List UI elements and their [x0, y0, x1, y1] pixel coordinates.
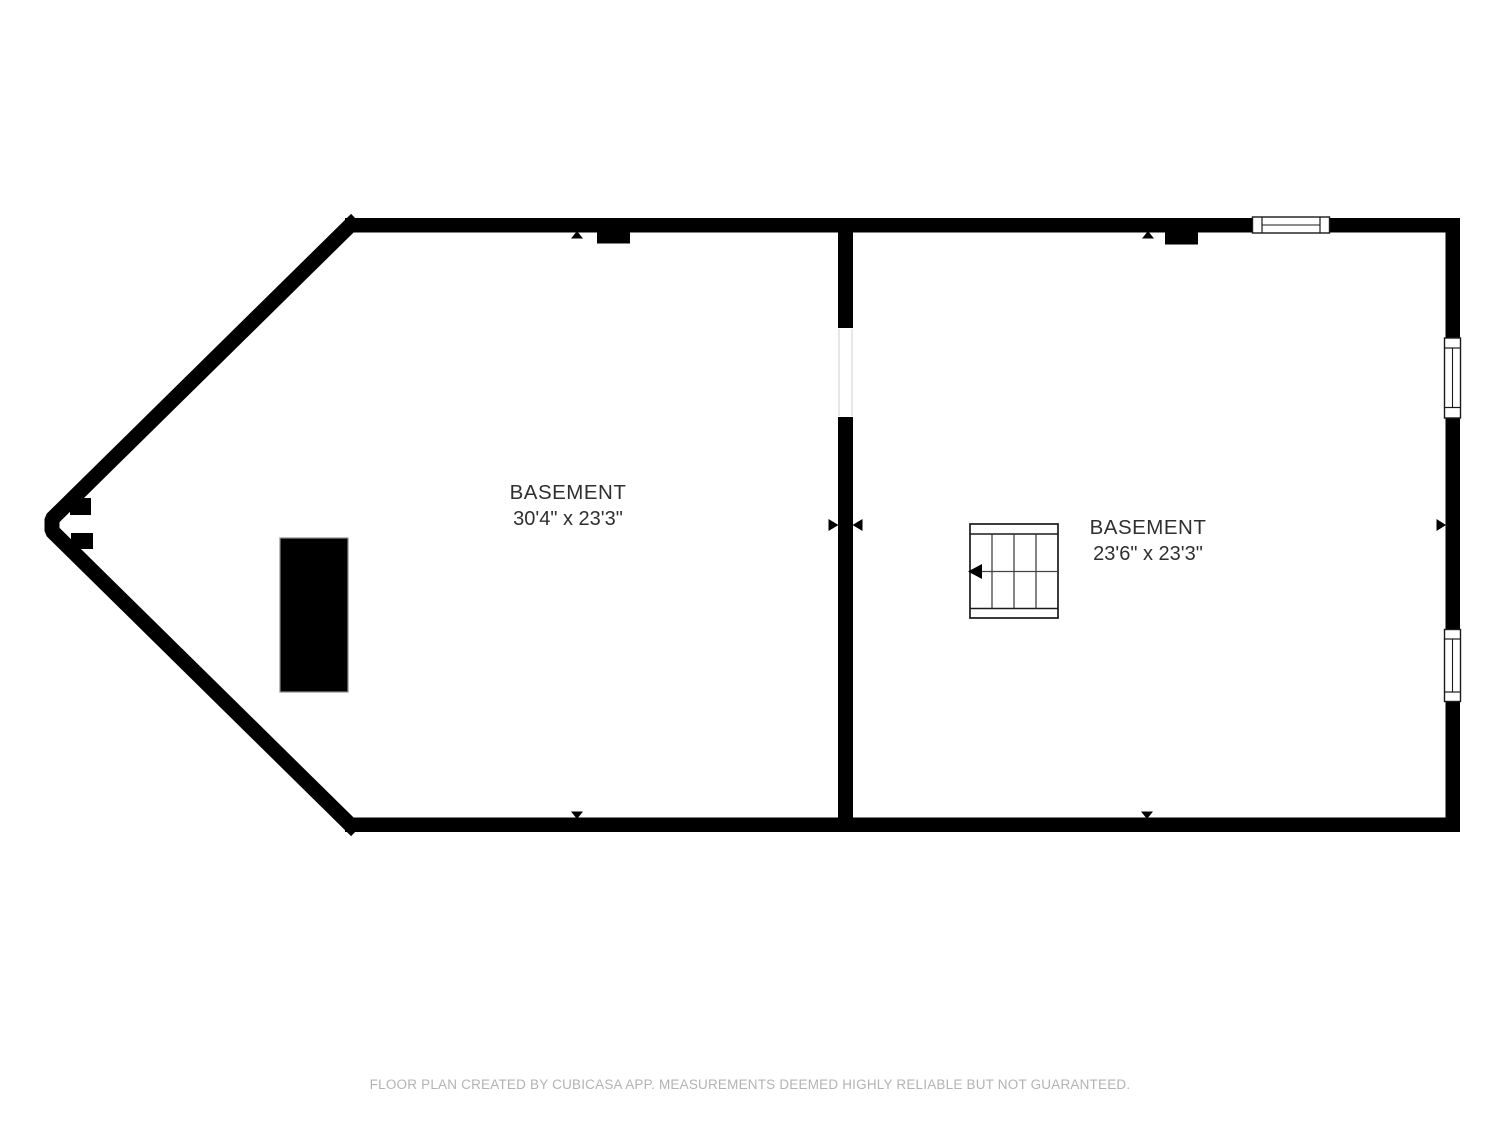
right-wall: [1446, 218, 1461, 832]
door-opening-divider-wall: [839, 329, 852, 416]
divider-wall-lower-segment: [838, 417, 853, 818]
fireplace-icon: [280, 538, 348, 692]
divider-wall-upper-segment: [838, 232, 853, 328]
window-icon-top-wall: [1253, 217, 1330, 233]
room-name: BASEMENT: [418, 481, 718, 505]
room-label-basement-left: BASEMENT 30'4" x 23'3": [418, 481, 718, 531]
footer-disclaimer: FLOOR PLAN CREATED BY CUBICASA APP. MEAS…: [0, 1077, 1500, 1092]
window-icon-right-wall-upper: [1445, 338, 1461, 418]
wall-marker-icon-divider-right: [853, 519, 863, 531]
floor-plan-canvas: BASEMENT 30'4" x 23'3" BASEMENT 23'6" x …: [0, 0, 1500, 1125]
room-dimensions: 23'6" x 23'3": [998, 542, 1298, 566]
room-dimensions: 30'4" x 23'3": [418, 507, 718, 531]
apex-notch-upper: [70, 498, 91, 515]
door-icon-right-room: [1165, 232, 1198, 245]
windows: [1253, 217, 1461, 702]
left-diagonal-walls: [52, 225, 351, 826]
door-icon-left-room: [597, 232, 630, 244]
room-name: BASEMENT: [998, 516, 1298, 540]
wall-marker-icon-right-wall: [1437, 519, 1447, 531]
apex-notch-lower: [71, 533, 93, 549]
room-label-basement-right: BASEMENT 23'6" x 23'3": [998, 516, 1298, 566]
doors: [597, 232, 1198, 245]
window-icon-right-wall-lower: [1445, 630, 1461, 702]
bottom-wall: [345, 818, 1460, 833]
wall-marker-icon-divider-left: [829, 519, 839, 531]
